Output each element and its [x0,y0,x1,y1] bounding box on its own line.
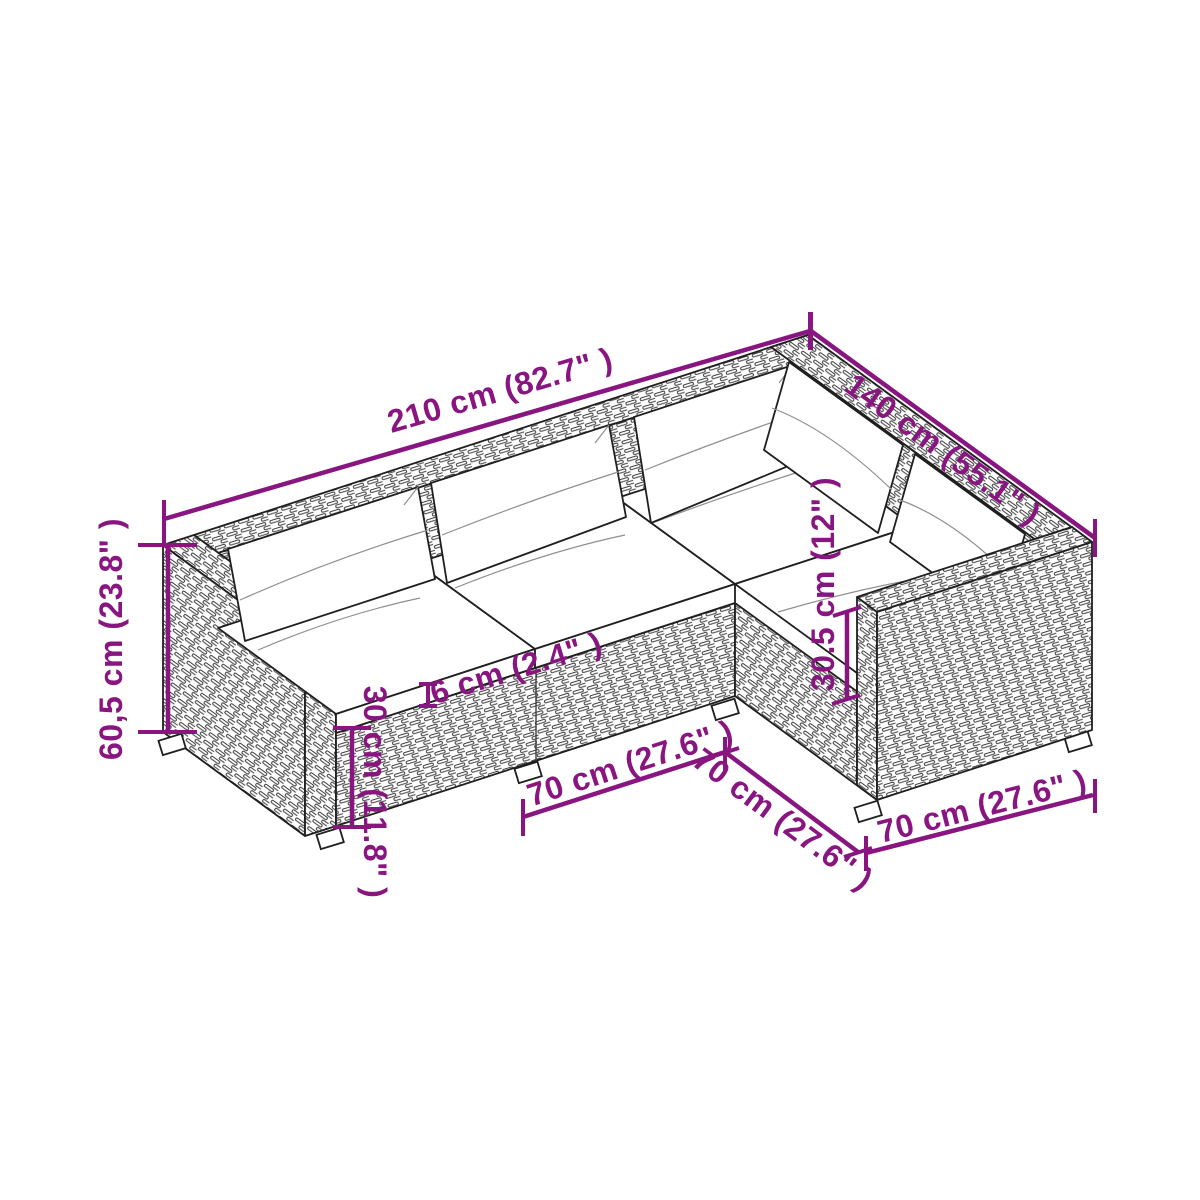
product-dimension-diagram: 210 cm (82.7" ) 140 cm (55.1" ) 60,5 cm … [0,0,1200,1200]
dim-base-height-label: 30 cm (11.8" ) [357,686,393,899]
right-armrest-end-face [857,597,877,800]
dim-backrest-height-label: 30.5 cm (12" ) [805,477,841,691]
diagram-svg: 210 cm (82.7" ) 140 cm (55.1" ) 60,5 cm … [0,0,1200,1200]
foot [158,734,185,755]
dim-total-height-label: 60,5 cm (23.8" ) [93,518,129,760]
